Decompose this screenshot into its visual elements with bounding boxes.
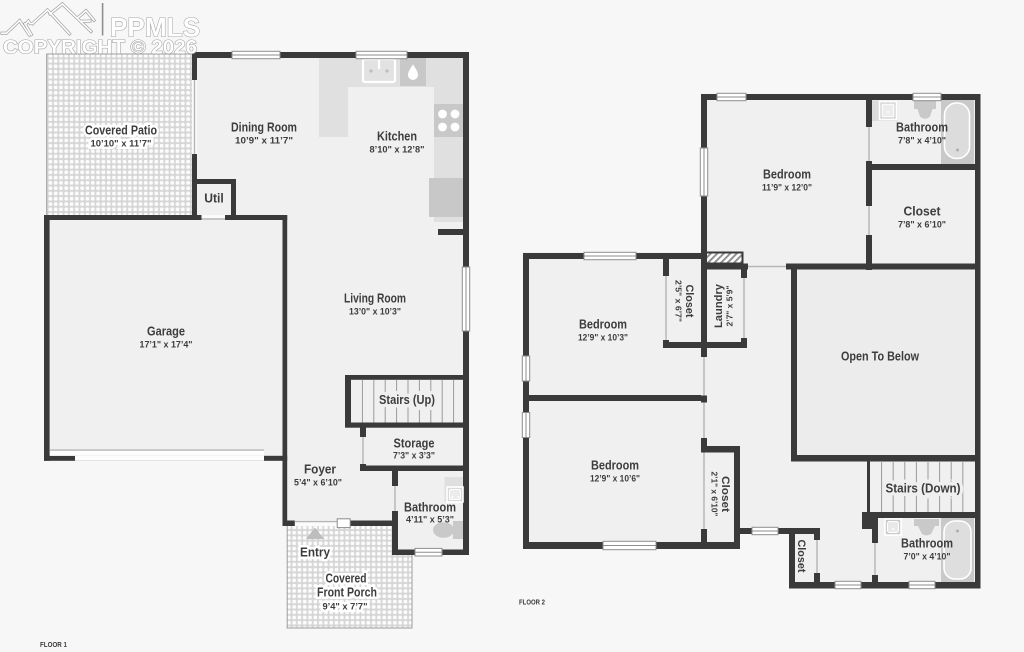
svg-text:Bedroom: Bedroom xyxy=(591,459,639,473)
svg-text:Bathroom: Bathroom xyxy=(901,537,953,551)
svg-text:12’9" x 10’3": 12’9" x 10’3" xyxy=(578,333,628,343)
svg-text:Bathroom: Bathroom xyxy=(896,121,948,135)
svg-text:2’1" x 6’10": 2’1" x 6’10" xyxy=(710,472,720,517)
svg-text:Bedroom: Bedroom xyxy=(579,318,627,332)
svg-text:Util: Util xyxy=(204,192,224,206)
svg-text:Storage: Storage xyxy=(394,437,435,451)
svg-text:Closet: Closet xyxy=(795,540,807,573)
svg-text:Closet: Closet xyxy=(683,285,695,318)
svg-text:Kitchen: Kitchen xyxy=(377,130,417,144)
svg-text:COPYRIGHT © 2026: COPYRIGHT © 2026 xyxy=(3,38,197,59)
svg-text:2’7" x 5’9": 2’7" x 5’9" xyxy=(725,285,735,326)
svg-text:Closet: Closet xyxy=(719,476,731,512)
svg-text:8’10" x 12’8": 8’10" x 12’8" xyxy=(370,145,425,155)
svg-text:5’4" x 6’10": 5’4" x 6’10" xyxy=(294,478,342,488)
svg-text:4’11" x 5’3": 4’11" x 5’3" xyxy=(406,515,454,525)
svg-text:Covered Patio: Covered Patio xyxy=(85,124,157,138)
svg-text:Dining Room: Dining Room xyxy=(231,121,297,135)
svg-text:7’3" x 3’3": 7’3" x 3’3" xyxy=(393,451,435,461)
svg-text:Foyer: Foyer xyxy=(304,463,336,477)
svg-text:17’1" x 17’4": 17’1" x 17’4" xyxy=(140,340,193,350)
svg-text:Bedroom: Bedroom xyxy=(763,168,811,182)
svg-text:7’8" x 6’10": 7’8" x 6’10" xyxy=(898,220,946,230)
svg-text:7’8" x 4’10": 7’8" x 4’10" xyxy=(898,136,946,146)
svg-text:12’9" x 10’6": 12’9" x 10’6" xyxy=(590,474,640,484)
svg-text:10’10" x 11’7": 10’10" x 11’7" xyxy=(91,139,152,149)
svg-text:Front Porch: Front Porch xyxy=(317,586,377,600)
svg-text:10’9" x 11’7": 10’9" x 11’7" xyxy=(235,136,293,146)
svg-text:2’5" x 6’7": 2’5" x 6’7" xyxy=(674,280,684,322)
svg-text:Stairs (Down): Stairs (Down) xyxy=(886,482,961,496)
svg-text:9’4" x 7’7": 9’4" x 7’7" xyxy=(323,602,368,612)
svg-text:Living Room: Living Room xyxy=(344,292,406,306)
svg-text:FLOOR 1: FLOOR 1 xyxy=(40,640,67,649)
svg-text:7’0" x 4’10": 7’0" x 4’10" xyxy=(904,552,951,562)
svg-text:Covered: Covered xyxy=(326,572,367,586)
svg-text:13’0" x 10’3": 13’0" x 10’3" xyxy=(349,307,401,317)
svg-text:Laundry: Laundry xyxy=(713,283,725,328)
svg-text:FLOOR 2: FLOOR 2 xyxy=(519,598,545,607)
svg-text:Stairs (Up): Stairs (Up) xyxy=(379,393,435,407)
svg-text:Closet: Closet xyxy=(904,205,942,219)
svg-text:Bathroom: Bathroom xyxy=(404,501,456,515)
svg-text:Entry: Entry xyxy=(300,546,330,560)
svg-text:Garage: Garage xyxy=(147,325,185,339)
svg-text:Open To Below: Open To Below xyxy=(841,350,919,364)
svg-text:11’9" x 12’0": 11’9" x 12’0" xyxy=(762,183,812,193)
